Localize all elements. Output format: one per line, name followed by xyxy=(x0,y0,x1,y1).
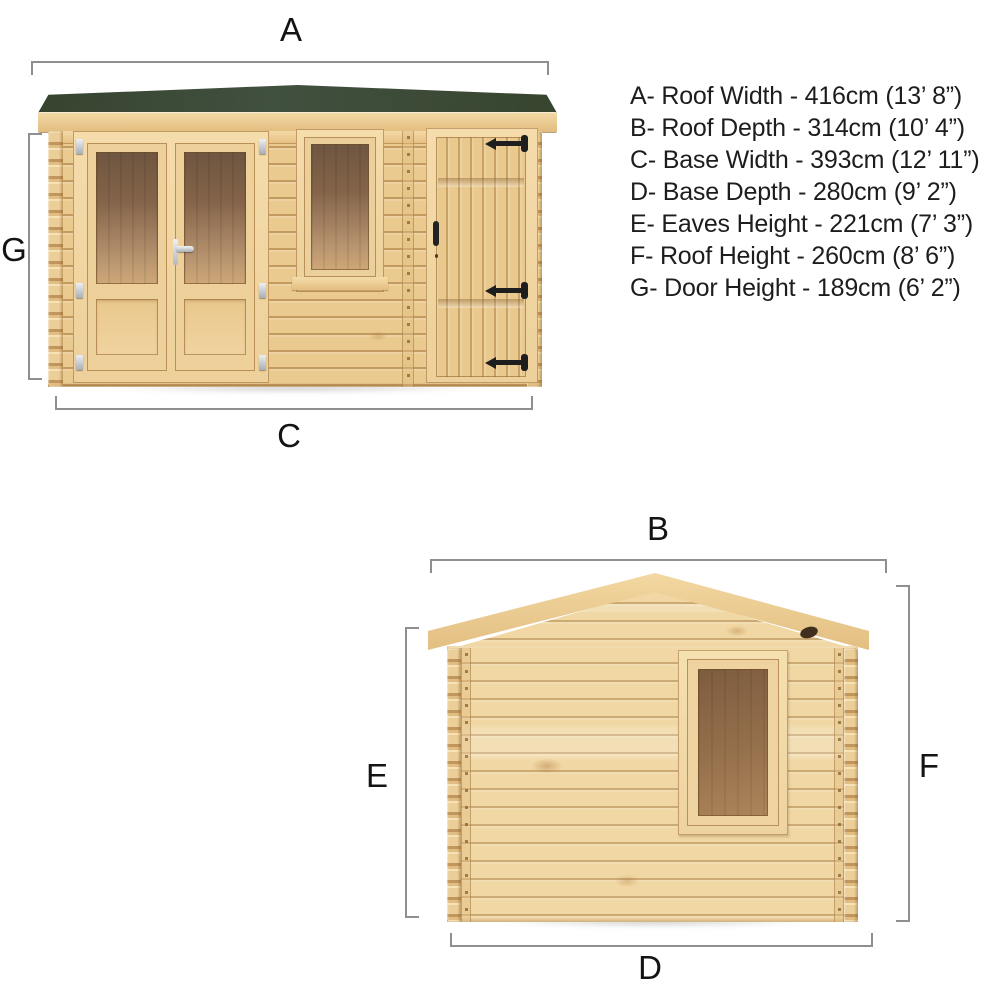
front-window-sill xyxy=(292,277,388,290)
side-log-wall xyxy=(447,646,858,922)
door-glass xyxy=(96,152,158,284)
dimension-label-g: G xyxy=(0,232,31,268)
legend-item: D- Base Depth - 280cm (9’ 2”) xyxy=(630,176,979,208)
window-glass xyxy=(698,669,768,816)
door-hinge-icon xyxy=(259,283,266,298)
door-hinge-icon xyxy=(259,355,266,370)
t-hinge-icon xyxy=(495,141,525,146)
dimension-label-b: B xyxy=(641,511,675,547)
door-lower-panel xyxy=(96,299,158,355)
door-glass xyxy=(184,152,246,284)
dimension-label-c: C xyxy=(272,418,306,454)
dimension-line-c xyxy=(55,396,533,410)
dimension-legend: A- Roof Width - 416cm (13’ 8”) B- Roof D… xyxy=(630,80,979,304)
shed-door xyxy=(436,137,526,377)
double-door-right xyxy=(175,143,255,371)
t-hinge-icon xyxy=(495,288,525,293)
door-lower-panel xyxy=(184,299,246,355)
wall-joint-strip xyxy=(834,648,844,922)
legend-item: G- Door Height - 189cm (6’ 2”) xyxy=(630,272,979,304)
diagram-canvas: A xyxy=(0,0,1000,1000)
shed-door-rail xyxy=(438,299,524,308)
double-door-unit xyxy=(73,131,269,383)
corner-log-ends-right xyxy=(844,648,858,922)
dimension-label-e: E xyxy=(360,758,394,794)
legend-item: F- Roof Height - 260cm (8’ 6”) xyxy=(630,240,979,272)
dimension-label-d: D xyxy=(633,950,667,986)
front-window xyxy=(296,129,384,292)
door-hinge-icon xyxy=(76,355,83,370)
shed-door-rail xyxy=(438,178,524,187)
side-window-frame xyxy=(687,659,779,826)
legend-item: E- Eaves Height - 221cm (7’ 3”) xyxy=(630,208,979,240)
door-handle xyxy=(176,246,194,252)
door-hinge-icon xyxy=(76,139,83,154)
shed-door-unit xyxy=(426,128,538,383)
legend-item: C- Base Width - 393cm (12’ 11”) xyxy=(630,144,979,176)
front-window-frame xyxy=(304,137,376,277)
dimension-label-f: F xyxy=(912,748,946,784)
wall-joint-strip xyxy=(461,648,471,922)
dimension-line-b xyxy=(430,559,887,573)
shed-door-handle xyxy=(433,221,439,246)
corner-log-ends-left xyxy=(48,131,63,387)
door-hinge-icon xyxy=(259,139,266,154)
legend-item: B- Roof Depth - 314cm (10’ 4”) xyxy=(630,112,979,144)
dimension-label-a: A xyxy=(274,12,308,48)
wall-joint-strip xyxy=(402,131,414,387)
t-hinge-icon xyxy=(495,360,525,365)
dimension-line-a xyxy=(31,61,549,75)
dimension-line-d xyxy=(450,933,873,947)
legend-item: A- Roof Width - 416cm (13’ 8”) xyxy=(630,80,979,112)
double-door-left xyxy=(87,143,167,371)
door-handle-plate xyxy=(173,239,178,265)
shed-door-keyhole xyxy=(435,254,438,258)
corner-log-ends-left xyxy=(447,648,461,922)
side-window xyxy=(678,650,788,835)
window-glass xyxy=(311,144,369,270)
dimension-line-f xyxy=(896,585,910,922)
roof-felt xyxy=(38,85,557,113)
door-hinge-icon xyxy=(76,283,83,298)
dimension-line-e xyxy=(405,627,419,918)
